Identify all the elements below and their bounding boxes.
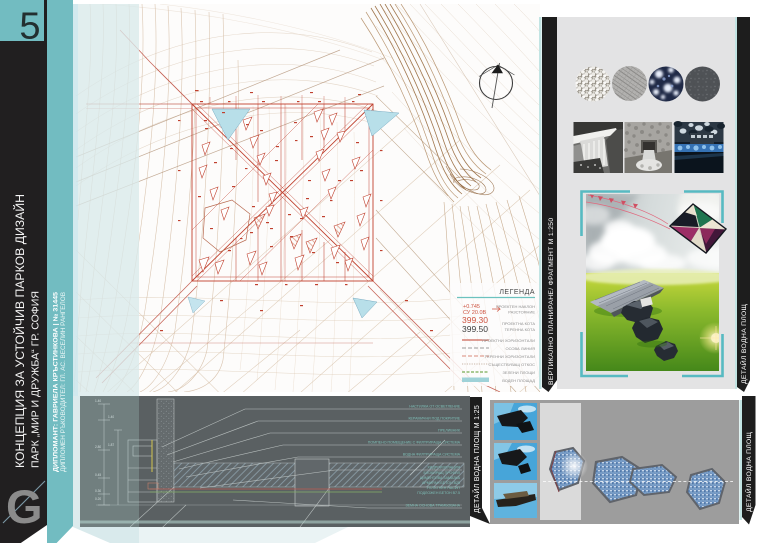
svg-text:НАСТИЛКА ОТ ОСВЕТЛЕНИЕ: НАСТИЛКА ОТ ОСВЕТЛЕНИЕ xyxy=(409,405,460,409)
svg-text:ВОДНА ФИЛТРИРАЩА СИСТЕМА: ВОДНА ФИЛТРИРАЩА СИСТЕМА xyxy=(403,453,461,457)
svg-text:G: G xyxy=(6,480,43,533)
svg-text:АРМИРАН БЕТОН В25: АРМИРАН БЕТОН В25 xyxy=(422,481,460,485)
svg-text:ВОДЕН ПЛОЩАД: ВОДЕН ПЛОЩАД xyxy=(502,378,535,383)
svg-text:ОСОВА ЛИНИЯ: ОСОВА ЛИНИЯ xyxy=(506,346,536,351)
svg-text:БЛОКИРАЩ ПРОФИЛ: БЛОКИРАЩ ПРОФИЛ xyxy=(424,471,461,475)
svg-text:5: 5 xyxy=(19,6,40,48)
svg-text:ПОМПЕНО ПОМЕЩЕНИЕ С ФИЛТРИРАЩА: ПОМПЕНО ПОМЕЩЕНИЕ С ФИЛТРИРАЩА СИСТЕМА xyxy=(368,441,461,445)
svg-text:ПАРК „МИР И ДРУЖБА“ ГР. СОФИЯ: ПАРК „МИР И ДРУЖБА“ ГР. СОФИЯ xyxy=(31,291,42,468)
svg-text:КЕРАМИЧНИ ПОД ПОКРИТИЕ: КЕРАМИЧНИ ПОД ПОКРИТИЕ xyxy=(408,417,460,421)
svg-text:ДЕТАЙЛ ВОДНА ПЛОЩ М 1:25: ДЕТАЙЛ ВОДНА ПЛОЩ М 1:25 xyxy=(472,405,481,513)
svg-text:399.50: 399.50 xyxy=(462,324,488,334)
svg-text:КОНЦЕПЦИЯ ЗА УСТОЙЧИВ ПАРКОВ Д: КОНЦЕПЦИЯ ЗА УСТОЙЧИВ ПАРКОВ ДИЗАЙН xyxy=(13,194,27,468)
svg-text:ЦИМЕНТОВА ЗАМАЗКА: ЦИМЕНТОВА ЗАМАЗКА xyxy=(420,476,461,480)
svg-text:ТЕРЕННИ ХОРИЗОНТАЛИ: ТЕРЕННИ ХОРИЗОНТАЛИ xyxy=(485,354,535,359)
svg-text:ЗЕМНА ОСНОВА ТРАМБОВАНА: ЗЕМНА ОСНОВА ТРАМБОВАНА xyxy=(405,504,460,508)
svg-text:ЗЕЛЕНИ ПЛОЩИ: ЗЕЛЕНИ ПЛОЩИ xyxy=(503,370,536,375)
svg-text:ПРОЕКТНА КОТА: ПРОЕКТНА КОТА xyxy=(502,321,535,326)
svg-text:ТЕРЕННА КОТА: ТЕРЕННА КОТА xyxy=(505,327,536,332)
svg-text:ПРЕЛИВНИК: ПРЕЛИВНИК xyxy=(438,429,461,433)
svg-text:ДИПЛОМЕН РЪКОВОДИТЕЛ: ГЛ. АС.: ДИПЛОМЕН РЪКОВОДИТЕЛ: ГЛ. АС. ВЕСЕЛИН РА… xyxy=(60,292,67,472)
svg-text:ДЕТАЙЛ ВОДНА ПЛОЩ: ДЕТАЙЛ ВОДНА ПЛОЩ xyxy=(739,303,748,384)
svg-text:СЪЩЕСТВУВАЩ ОТКОС: СЪЩЕСТВУВАЩ ОТКОС xyxy=(488,362,535,367)
svg-text:ЛЕГЕНДА: ЛЕГЕНДА xyxy=(499,289,535,296)
svg-text:ДИПЛОМАНТ: ГАВРИЕЛА КРЪСТИНКОВ: ДИПЛОМАНТ: ГАВРИЕЛА КРЪСТИНКОВА | № 3144… xyxy=(53,291,60,472)
svg-text:ВЕРТИКАЛНО ПЛАНИРАНЕ/ ФРАГМЕНТ: ВЕРТИКАЛНО ПЛАНИРАНЕ/ ФРАГМЕНТ М 1:250 xyxy=(548,218,555,385)
svg-text:ДЕТАЙЛ ВОДНА ПЛОЩ: ДЕТАЙЛ ВОДНА ПЛОЩ xyxy=(744,431,753,512)
svg-text:ПРОЕКТЕН НАКЛОН: ПРОЕКТЕН НАКЛОН xyxy=(496,304,535,309)
svg-text:УПЛЪТНЕН НАСИП: УПЛЪТНЕН НАСИП xyxy=(426,486,460,490)
svg-text:ПОДЛОЖЕН БЕТОН В7.5: ПОДЛОЖЕН БЕТОН В7.5 xyxy=(417,491,460,495)
svg-text:ПРОЕКТНИ ХОРИЗОНТАЛИ: ПРОЕКТНИ ХОРИЗОНТАЛИ xyxy=(482,338,535,343)
svg-text:РАЗСТОЯНИЕ: РАЗСТОЯНИЕ xyxy=(508,310,535,315)
svg-text:ХИДРОИЗОЛАЦИЯ: ХИДРОИЗОЛАЦИЯ xyxy=(427,466,460,470)
